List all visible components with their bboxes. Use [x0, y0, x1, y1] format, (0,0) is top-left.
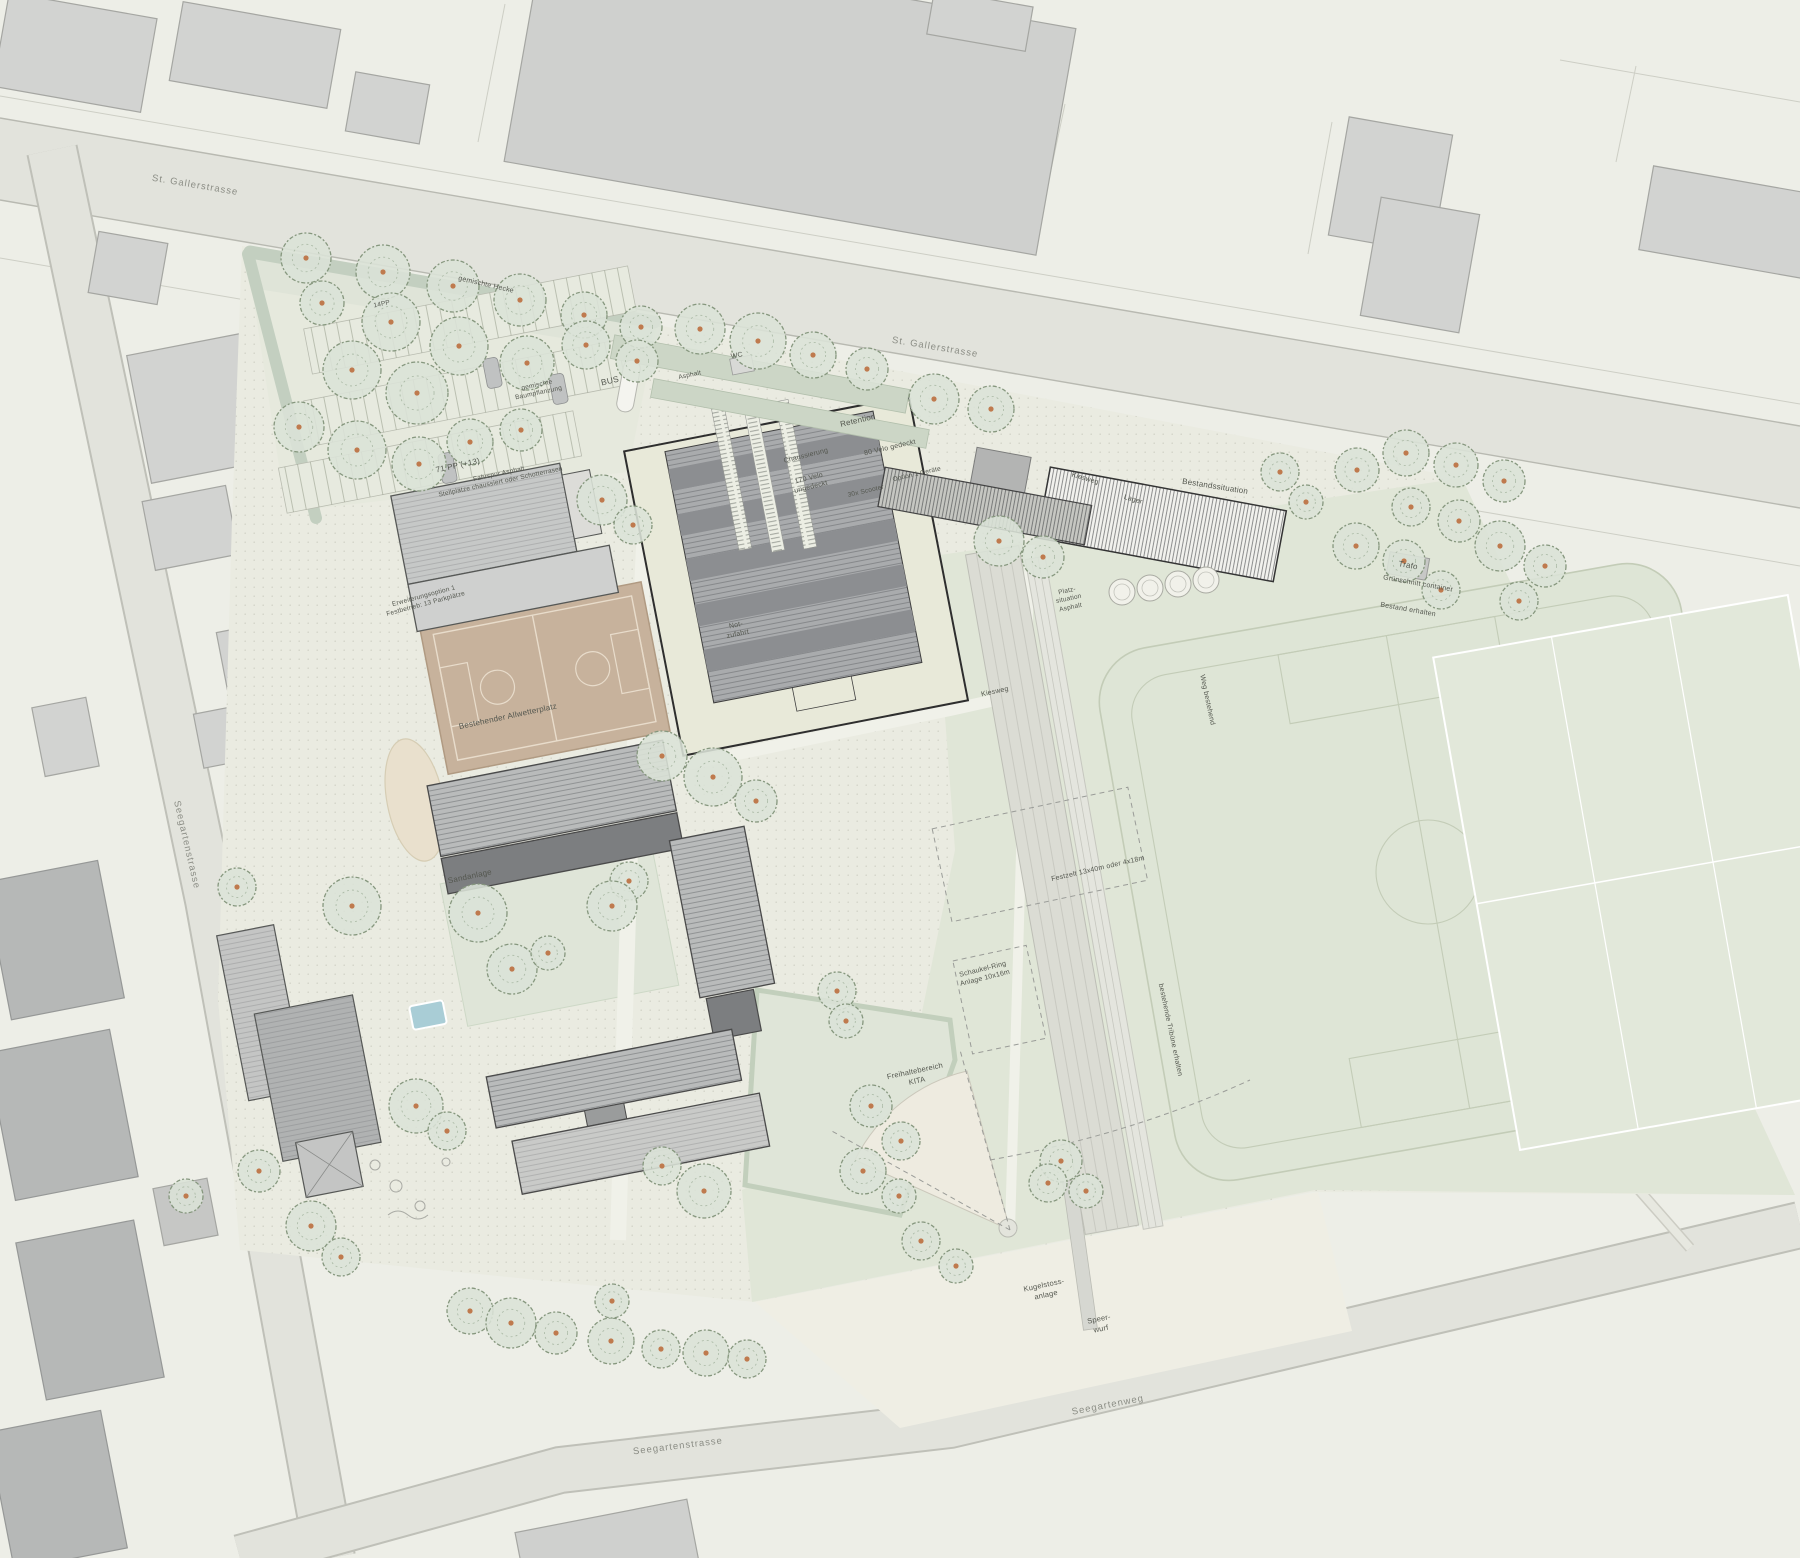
tree	[281, 233, 331, 283]
tree	[322, 1238, 360, 1276]
tree	[683, 1330, 729, 1376]
tree	[939, 1249, 973, 1283]
planter-circle	[1109, 579, 1135, 605]
tree	[1475, 521, 1525, 571]
tree	[1524, 545, 1566, 587]
tree	[494, 274, 546, 326]
planter-circle	[1137, 575, 1163, 601]
tree	[728, 1340, 766, 1378]
tree	[392, 437, 446, 491]
tree	[486, 1298, 536, 1348]
tree	[1335, 448, 1379, 492]
tree	[846, 348, 888, 390]
tree	[323, 341, 381, 399]
tree	[1022, 536, 1064, 578]
tree	[487, 944, 537, 994]
tree	[430, 317, 488, 375]
tree	[677, 1164, 731, 1218]
tree	[974, 516, 1024, 566]
tree	[790, 332, 836, 378]
tree	[427, 260, 479, 312]
tree	[1289, 485, 1323, 519]
tree	[1383, 540, 1425, 582]
tree	[588, 1318, 634, 1364]
tree	[1333, 523, 1379, 569]
tree	[531, 936, 565, 970]
tree	[882, 1179, 916, 1213]
tree	[274, 402, 324, 452]
tree	[362, 293, 420, 351]
tree	[1438, 500, 1480, 542]
tree	[642, 1330, 680, 1368]
wasserbecken	[409, 1000, 447, 1030]
tree	[730, 313, 786, 369]
tree	[614, 506, 652, 544]
tree	[386, 362, 448, 424]
tree	[643, 1147, 681, 1185]
planter-circle	[1193, 567, 1219, 593]
tree	[428, 1112, 466, 1150]
tree	[1029, 1164, 1067, 1202]
tree	[562, 321, 610, 369]
site-plan: St. GallerstrasseSt. GallerstrasseSeegar…	[0, 0, 1800, 1558]
tree	[218, 868, 256, 906]
tree	[1392, 488, 1430, 526]
tree	[238, 1150, 280, 1192]
tree	[1069, 1174, 1103, 1208]
tree	[447, 419, 493, 465]
tree	[328, 421, 386, 479]
tree	[909, 374, 959, 424]
tree	[1383, 430, 1429, 476]
tree	[323, 877, 381, 935]
tree	[735, 780, 777, 822]
tree	[829, 1004, 863, 1038]
tree	[356, 245, 410, 299]
tree	[1483, 460, 1525, 502]
tree	[500, 336, 554, 390]
tree	[1422, 571, 1460, 609]
planter-circle	[1165, 571, 1191, 597]
tree	[968, 386, 1014, 432]
tree	[1500, 582, 1538, 620]
tree	[902, 1222, 940, 1260]
tree	[169, 1179, 203, 1213]
tree	[535, 1312, 577, 1354]
tree	[637, 731, 687, 781]
tree	[850, 1085, 892, 1127]
tree	[449, 884, 507, 942]
tree	[616, 340, 658, 382]
tree	[1261, 453, 1299, 491]
tree	[684, 748, 742, 806]
tree	[1434, 443, 1478, 487]
site-plan-canvas	[0, 0, 1800, 1558]
tree	[500, 409, 542, 451]
tree	[840, 1148, 886, 1194]
tree	[675, 304, 725, 354]
tree	[587, 881, 637, 931]
tree	[300, 281, 344, 325]
tree	[595, 1284, 629, 1318]
tree	[882, 1122, 920, 1160]
